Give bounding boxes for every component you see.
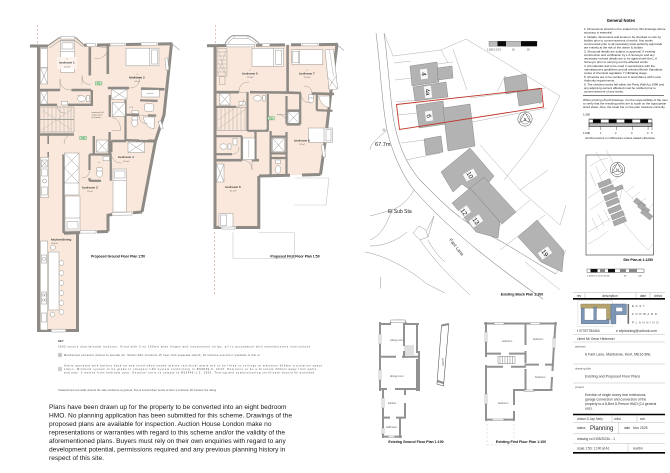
svg-text:Proposed First Floor Plan 1:50: Proposed First Floor Plan 1:50 [270,254,319,258]
svg-text:8.1m²: 8.1m² [87,190,93,193]
svg-text:status: status [577,426,586,430]
svg-text:1:200 0 2.5 5: 1:200 0 2.5 5 [487,49,502,52]
svg-text:to all levels: to all levels [92,116,101,119]
svg-text:Existing Ground Floor Plan 1:1: Existing Ground Floor Plan 1:100 [388,440,443,444]
svg-text:accuracy is essential.: accuracy is essential. [584,31,613,35]
svg-text:Existing and Proposed Floor Pl: Existing and Proposed Floor Plans [585,375,640,379]
svg-text:description: description [602,294,618,298]
svg-text:bedroom: bedroom [535,375,545,379]
svg-text:3000 secure door/window lockou: 3000 secure door/window lockouts, fitted… [58,346,311,349]
svg-text:El Sub Sta: El Sub Sta [388,209,412,215]
svg-text:13.9m²: 13.9m² [64,65,71,68]
svg-text:dining room: dining room [390,374,404,378]
svg-text:FORWARD: FORWARD [632,312,659,316]
svg-text:General Notes: General Notes [607,18,636,23]
svg-text:6 Fant Lane, Maidstone, Kent,: 6 Fant Lane, Maidstone, Kent, ME16 8NL [585,353,651,357]
svg-text:property to a 8-Bed 8-Person H: property to a 8-Bed 8-Person HMO (C4 gen… [585,402,656,406]
svg-text:8.7m²: 8.7m² [299,143,305,146]
svg-text:kitchen: kitchen [388,401,397,405]
svg-text:development potential, permiss: development potential, permissions requi… [49,447,286,454]
svg-text:1:500: 1:500 [583,113,590,117]
svg-text:bedroom 8: bedroom 8 [294,139,310,143]
svg-text:bedroom: bedroom [502,339,512,343]
svg-text:kitchen/dining: kitchen/dining [51,237,72,241]
svg-text:Erection of single storey rear: Erection of single storey rear extension… [585,393,646,397]
svg-text:and max. 3 metres from bedroom: and max. 3 metres from bedroom door. Det… [64,372,315,375]
svg-text:representations or warranties: representations or warranties with regar… [49,430,285,437]
svg-text:M: M [59,354,61,357]
svg-text:drawn D.Jay Serly: drawn D.Jay Serly [577,417,603,421]
svg-text:sch: sch [640,417,645,421]
svg-text:w.c: w.c [78,95,81,97]
svg-text:drf/cd: drf/cd [654,294,662,298]
svg-text:9.2m²: 9.2m² [134,80,140,83]
svg-text:67.7m: 67.7m [375,142,391,148]
svg-text:aforementioned plans. Buyers m: aforementioned plans. Buyers must rely o… [49,438,286,445]
svg-text:FD: FD [82,137,85,140]
svg-text:e wfplanning@outlook.com: e wfplanning@outlook.com [616,329,657,333]
svg-text:garage conversion and conversi: garage conversion and conversion of the [585,398,646,402]
svg-text:commencement of any works.: commencement of any works. [584,90,624,94]
svg-text:19.6m²: 19.6m² [51,242,58,245]
svg-text:1:1250 0 5 10 15 20 40: 1:1250 0 5 10 15 20 40 [587,276,610,278]
svg-text:Proposed Ground Floor Plan 1:5: Proposed Ground Floor Plan 1:50 [91,254,145,258]
svg-text:t 07787784404: t 07787784404 [577,329,600,333]
svg-text:use).: use). [585,407,593,411]
svg-text:All dimensions in millimetres: All dimensions in millimetres unless sta… [585,136,655,140]
svg-text:date: date [640,294,646,298]
svg-text:Nov 2025: Nov 2025 [633,426,648,430]
svg-text:date: date [624,426,630,430]
svg-text:KEY: KEY [58,339,64,343]
svg-text:bedroom 4: bedroom 4 [118,155,134,159]
svg-text:rev/dm: rev/dm [633,446,643,450]
svg-text:bedroom: bedroom [533,337,543,341]
svg-text:Site Plan at 1:1250: Site Plan at 1:1250 [623,258,653,262]
svg-text:10.4m²: 10.4m² [123,160,130,163]
svg-text:bedroom 5: bedroom 5 [242,72,258,76]
svg-text:EASY: EASY [632,304,646,308]
svg-text:FD: FD [97,82,100,85]
svg-text:drawing no 0195/2021b - 1: drawing no 0195/2021b - 1 [577,437,615,441]
svg-text:FD: FD [269,117,272,120]
svg-text:client Mr Omar Hildermel: client Mr Omar Hildermel [577,337,615,341]
svg-text:bedroom 1: bedroom 1 [59,61,75,65]
svg-text:bedroom 6: bedroom 6 [225,185,241,189]
svg-text:N: N [616,168,619,172]
svg-text:w.c: w.c [98,162,101,164]
svg-text:bathroom: bathroom [386,425,397,429]
svg-text:Underpinned new walls around t: Underpinned new walls around the side en… [58,389,217,392]
svg-text:Existing First Floor Plan 1:10: Existing First Floor Plan 1:100 [496,440,546,444]
svg-text:drawing title: drawing title [575,367,591,371]
svg-text:project: project [575,385,584,389]
svg-text:garage: garage [441,358,446,367]
svg-text:bedroom: bedroom [498,401,508,405]
svg-text:Mechanical extractor ducted to: Mechanical extractor ducted to outside a… [64,354,260,357]
svg-text:11.2m²: 11.2m² [304,76,311,79]
svg-text:rev: rev [577,294,582,298]
svg-text:scale 1:50, 1:100 at A1: scale 1:50, 1:100 at A1 [577,446,610,450]
svg-text:respect of this site.: respect of this site. [49,455,104,462]
svg-text:bedroom 2: bedroom 2 [129,75,145,79]
svg-text:wardrobe: wardrobe [146,93,154,95]
svg-text:address: address [575,345,586,349]
svg-text:sitting room: sitting room [390,338,403,342]
svg-text:11.3m²: 11.3m² [247,76,254,79]
svg-text:chkd: chkd [614,417,621,421]
svg-text:Plans have been drawn up for t: Plans have been drawn up for the propert… [49,404,287,411]
svg-text:N: N [524,118,527,122]
svg-text:Existing Block Plan 1:200: Existing Block Plan 1:200 [501,293,543,297]
svg-text:HMO. No planning application h: HMO. No planning application has been su… [49,413,292,420]
svg-text:10.1m²: 10.1m² [230,189,237,192]
svg-text:PLANNING: PLANNING [632,321,660,325]
svg-text:Planning: Planning [590,426,613,432]
svg-text:bedroom 3: bedroom 3 [82,186,98,190]
svg-text:proposed plans are available f: proposed plans are available for inspect… [49,421,272,428]
svg-text:bedroom 7: bedroom 7 [299,72,315,76]
svg-text:sized sheet. Also, the scale b: sized sheet. Also, the scale bar on the … [583,105,665,109]
